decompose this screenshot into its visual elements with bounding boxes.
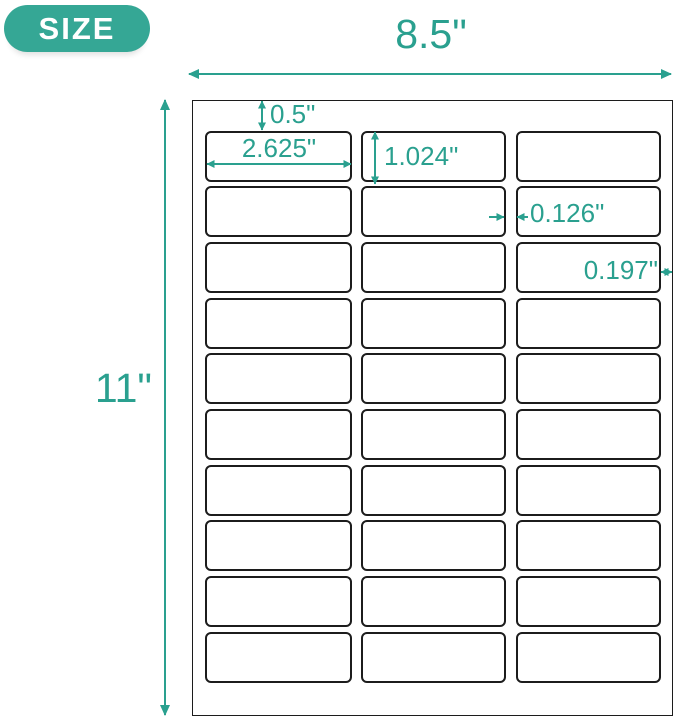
label-cell xyxy=(516,576,661,627)
top-margin-value: 0.5" xyxy=(270,101,315,127)
label-cell xyxy=(361,576,506,627)
label-cell xyxy=(516,131,661,182)
label-cell xyxy=(361,298,506,349)
size-badge-label: SIZE xyxy=(39,13,116,44)
label-cell xyxy=(516,353,661,404)
label-cell xyxy=(361,409,506,460)
label-cell xyxy=(516,632,661,683)
label-cell xyxy=(361,465,506,516)
label-cell xyxy=(516,298,661,349)
column-gap-value: 0.126" xyxy=(530,200,604,226)
label-cell xyxy=(361,353,506,404)
label-cell xyxy=(205,409,352,460)
label-sheet xyxy=(192,100,673,716)
label-cell xyxy=(516,520,661,571)
label-cell xyxy=(361,632,506,683)
label-cell xyxy=(205,632,352,683)
label-cell xyxy=(205,465,352,516)
label-cell xyxy=(516,409,661,460)
sheet-width-value: 8.5" xyxy=(190,14,672,55)
label-cell xyxy=(361,520,506,571)
label-height-value: 1.024" xyxy=(384,143,458,169)
label-cell xyxy=(516,465,661,516)
label-cell xyxy=(205,186,352,237)
sheet-height-value: 11" xyxy=(78,368,152,409)
size-badge: SIZE xyxy=(4,5,150,52)
label-cell xyxy=(361,242,506,293)
side-margin-value: 0.197" xyxy=(578,257,658,283)
label-width-value: 2.625" xyxy=(206,135,352,161)
label-cell xyxy=(205,353,352,404)
label-sheet-size-diagram: SIZE 8.5" 11" 0.5" 2.625" 1.024" 0.126" … xyxy=(0,0,679,725)
label-cell xyxy=(361,186,506,237)
label-cell xyxy=(205,298,352,349)
label-cell xyxy=(205,576,352,627)
label-cell xyxy=(205,242,352,293)
label-cell xyxy=(205,520,352,571)
